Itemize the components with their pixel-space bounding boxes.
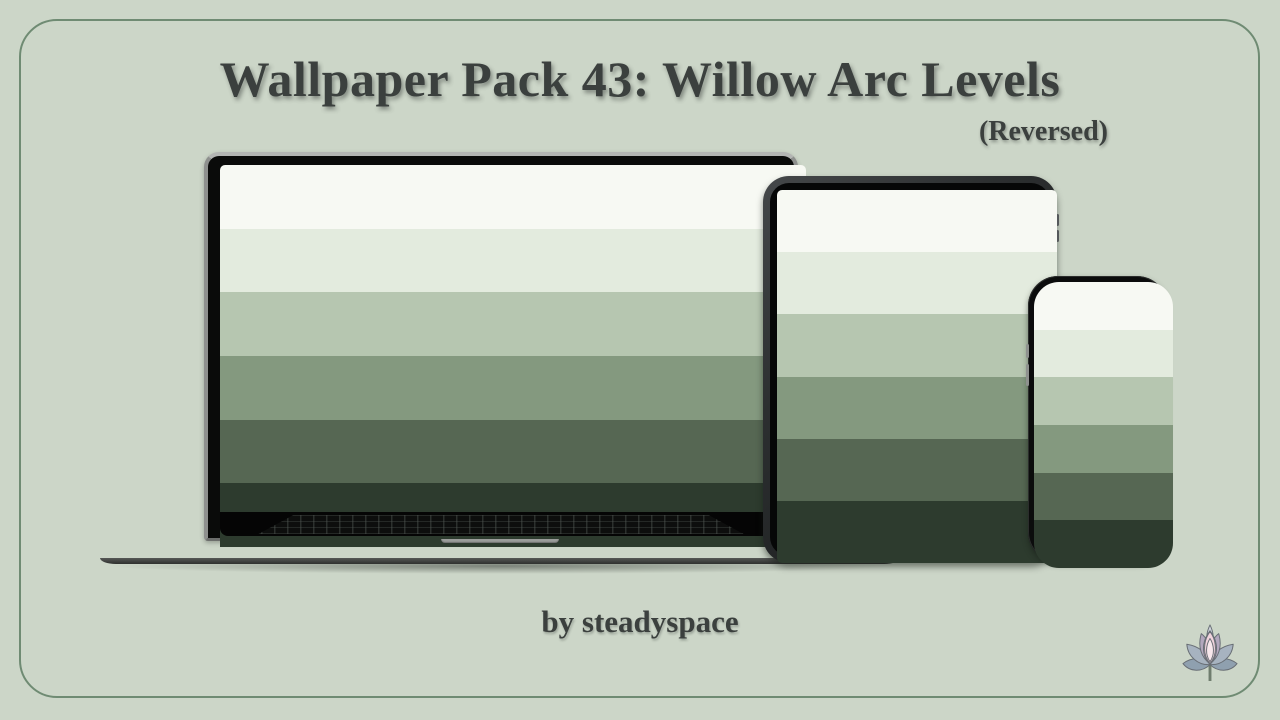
wallpaper-stripe [220, 420, 806, 484]
wallpaper-stripe [777, 439, 1057, 501]
wallpaper-stripe [777, 190, 1057, 252]
wallpaper-stripe [1034, 377, 1173, 425]
tablet-bezel [770, 183, 1050, 556]
wallpaper-stripe [220, 292, 806, 356]
page-title: Wallpaper Pack 43: Willow Arc Levels [0, 50, 1280, 108]
phone-mockup [1028, 276, 1167, 562]
poster-canvas: Wallpaper Pack 43: Willow Arc Levels (Re… [0, 0, 1280, 720]
tablet-mockup [763, 176, 1057, 563]
wallpaper-stripe [1034, 330, 1173, 378]
wallpaper-stripe [777, 377, 1057, 439]
wallpaper-stripe [777, 314, 1057, 376]
lotus-flower-icon [1181, 620, 1239, 684]
laptop-trackpad-notch [441, 539, 559, 543]
wallpaper-stripe [777, 252, 1057, 314]
phone-silent-switch [1026, 344, 1029, 358]
wallpaper-stripe [1034, 473, 1173, 521]
wallpaper-stripe [1034, 520, 1173, 568]
wallpaper-stripe [777, 501, 1057, 563]
wallpaper-stripe [1034, 425, 1173, 473]
laptop-keyboard-glimpse [220, 512, 782, 536]
wallpaper-stripe [1034, 282, 1173, 330]
credit-text: by steadyspace [0, 604, 1280, 640]
tablet-wallpaper [777, 190, 1057, 563]
wallpaper-stripe [220, 165, 806, 229]
subtitle-reversed: (Reversed) [979, 116, 1108, 148]
laptop-screen [204, 152, 798, 541]
wallpaper-stripe [220, 356, 806, 420]
wallpaper-stripe [220, 229, 806, 293]
laptop-wallpaper [220, 165, 806, 547]
phone-wallpaper [1034, 282, 1173, 568]
phone-volume-button [1026, 364, 1029, 386]
